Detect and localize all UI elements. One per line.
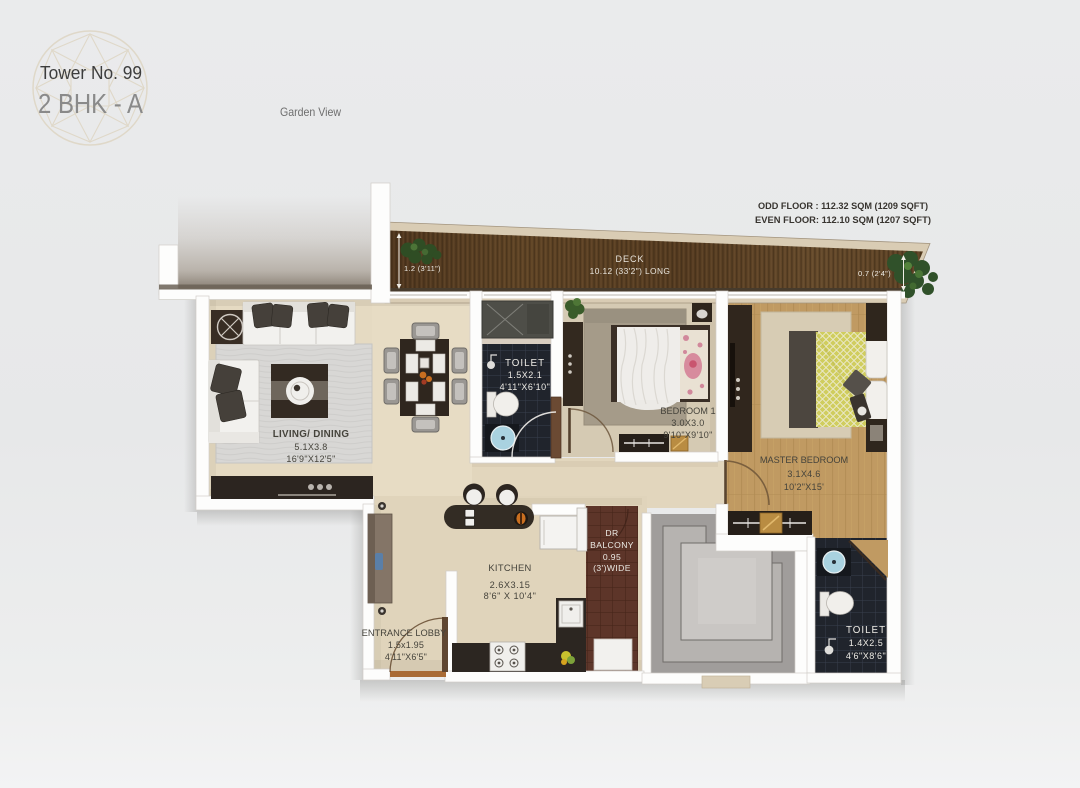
svg-text:3.1X4.6: 3.1X4.6 <box>787 469 820 479</box>
svg-text:(3')WIDE: (3')WIDE <box>593 563 631 573</box>
svg-text:4'11"X6'10": 4'11"X6'10" <box>500 382 551 392</box>
svg-text:LIVING/ DINING: LIVING/ DINING <box>273 429 350 440</box>
svg-text:0.95: 0.95 <box>603 552 621 562</box>
svg-text:16'9"X12'5": 16'9"X12'5" <box>286 454 335 464</box>
svg-text:TOILET: TOILET <box>846 625 886 636</box>
svg-text:Tower No. 99: Tower No. 99 <box>40 63 142 83</box>
svg-text:BALCONY: BALCONY <box>590 540 634 550</box>
svg-text:TOILET: TOILET <box>505 358 545 369</box>
svg-text:MASTER BEDROOM: MASTER BEDROOM <box>760 455 848 465</box>
svg-text:1.5x1.95: 1.5x1.95 <box>388 640 424 650</box>
svg-text:0.7 (2'4"): 0.7 (2'4") <box>858 269 891 278</box>
svg-text:ENTRANCE LOBBY: ENTRANCE LOBBY <box>362 628 447 638</box>
svg-text:DECK: DECK <box>615 254 644 264</box>
svg-text:4'6"X8'6": 4'6"X8'6" <box>846 651 886 661</box>
svg-text:3.0X3.0: 3.0X3.0 <box>671 418 704 428</box>
svg-text:4'11"X6'5": 4'11"X6'5" <box>385 652 427 662</box>
svg-text:Garden View: Garden View <box>280 105 341 119</box>
svg-text:2.6X3.15: 2.6X3.15 <box>490 580 531 590</box>
svg-text:ODD FLOOR : 112.32 SQM (1209 S: ODD FLOOR : 112.32 SQM (1209 SQFT) <box>758 201 928 212</box>
svg-text:1.4X2.5: 1.4X2.5 <box>849 638 884 648</box>
svg-text:9'10"X9'10": 9'10"X9'10" <box>663 430 712 440</box>
svg-text:10'2"X15': 10'2"X15' <box>784 482 824 492</box>
svg-text:10.12 (33'2") LONG: 10.12 (33'2") LONG <box>590 266 671 276</box>
svg-text:BEDROOM 1: BEDROOM 1 <box>660 406 715 416</box>
svg-text:KITCHEN: KITCHEN <box>488 562 531 573</box>
svg-text:EVEN FLOOR: 112.10 SQM (1207 S: EVEN FLOOR: 112.10 SQM (1207 SQFT) <box>755 215 931 226</box>
svg-text:8'6" X 10'4": 8'6" X 10'4" <box>484 591 537 601</box>
svg-text:1.2 (3'11"): 1.2 (3'11") <box>404 264 441 273</box>
svg-text:1.5X2.1: 1.5X2.1 <box>508 370 543 380</box>
svg-text:2 BHK - A: 2 BHK - A <box>38 88 143 119</box>
svg-text:5.1X3.8: 5.1X3.8 <box>294 442 327 452</box>
svg-text:DR: DR <box>605 528 618 538</box>
